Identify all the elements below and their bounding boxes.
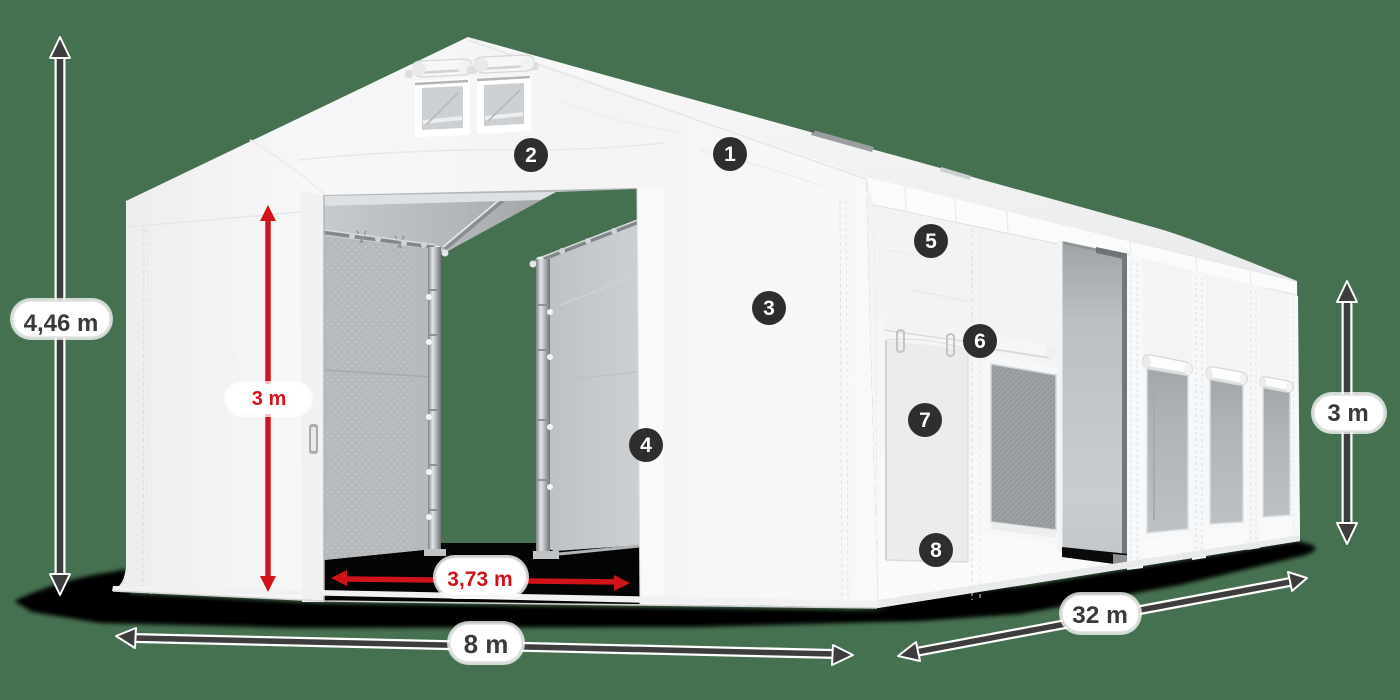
- svg-text:3 m: 3 m: [1327, 400, 1368, 427]
- svg-text:4,46 m: 4,46 m: [24, 310, 99, 337]
- svg-text:3: 3: [763, 297, 775, 320]
- svg-text:5: 5: [925, 230, 937, 253]
- svg-text:8 m: 8 m: [464, 629, 509, 659]
- svg-text:1: 1: [724, 143, 736, 166]
- svg-text:7: 7: [919, 409, 931, 432]
- svg-text:4: 4: [640, 434, 652, 457]
- svg-text:32 m: 32 m: [1072, 602, 1128, 629]
- svg-text:6: 6: [974, 330, 986, 353]
- svg-text:2: 2: [525, 144, 537, 167]
- svg-text:3 m: 3 m: [252, 388, 286, 410]
- svg-text:8: 8: [930, 539, 942, 562]
- svg-text:3,73 m: 3,73 m: [447, 568, 512, 591]
